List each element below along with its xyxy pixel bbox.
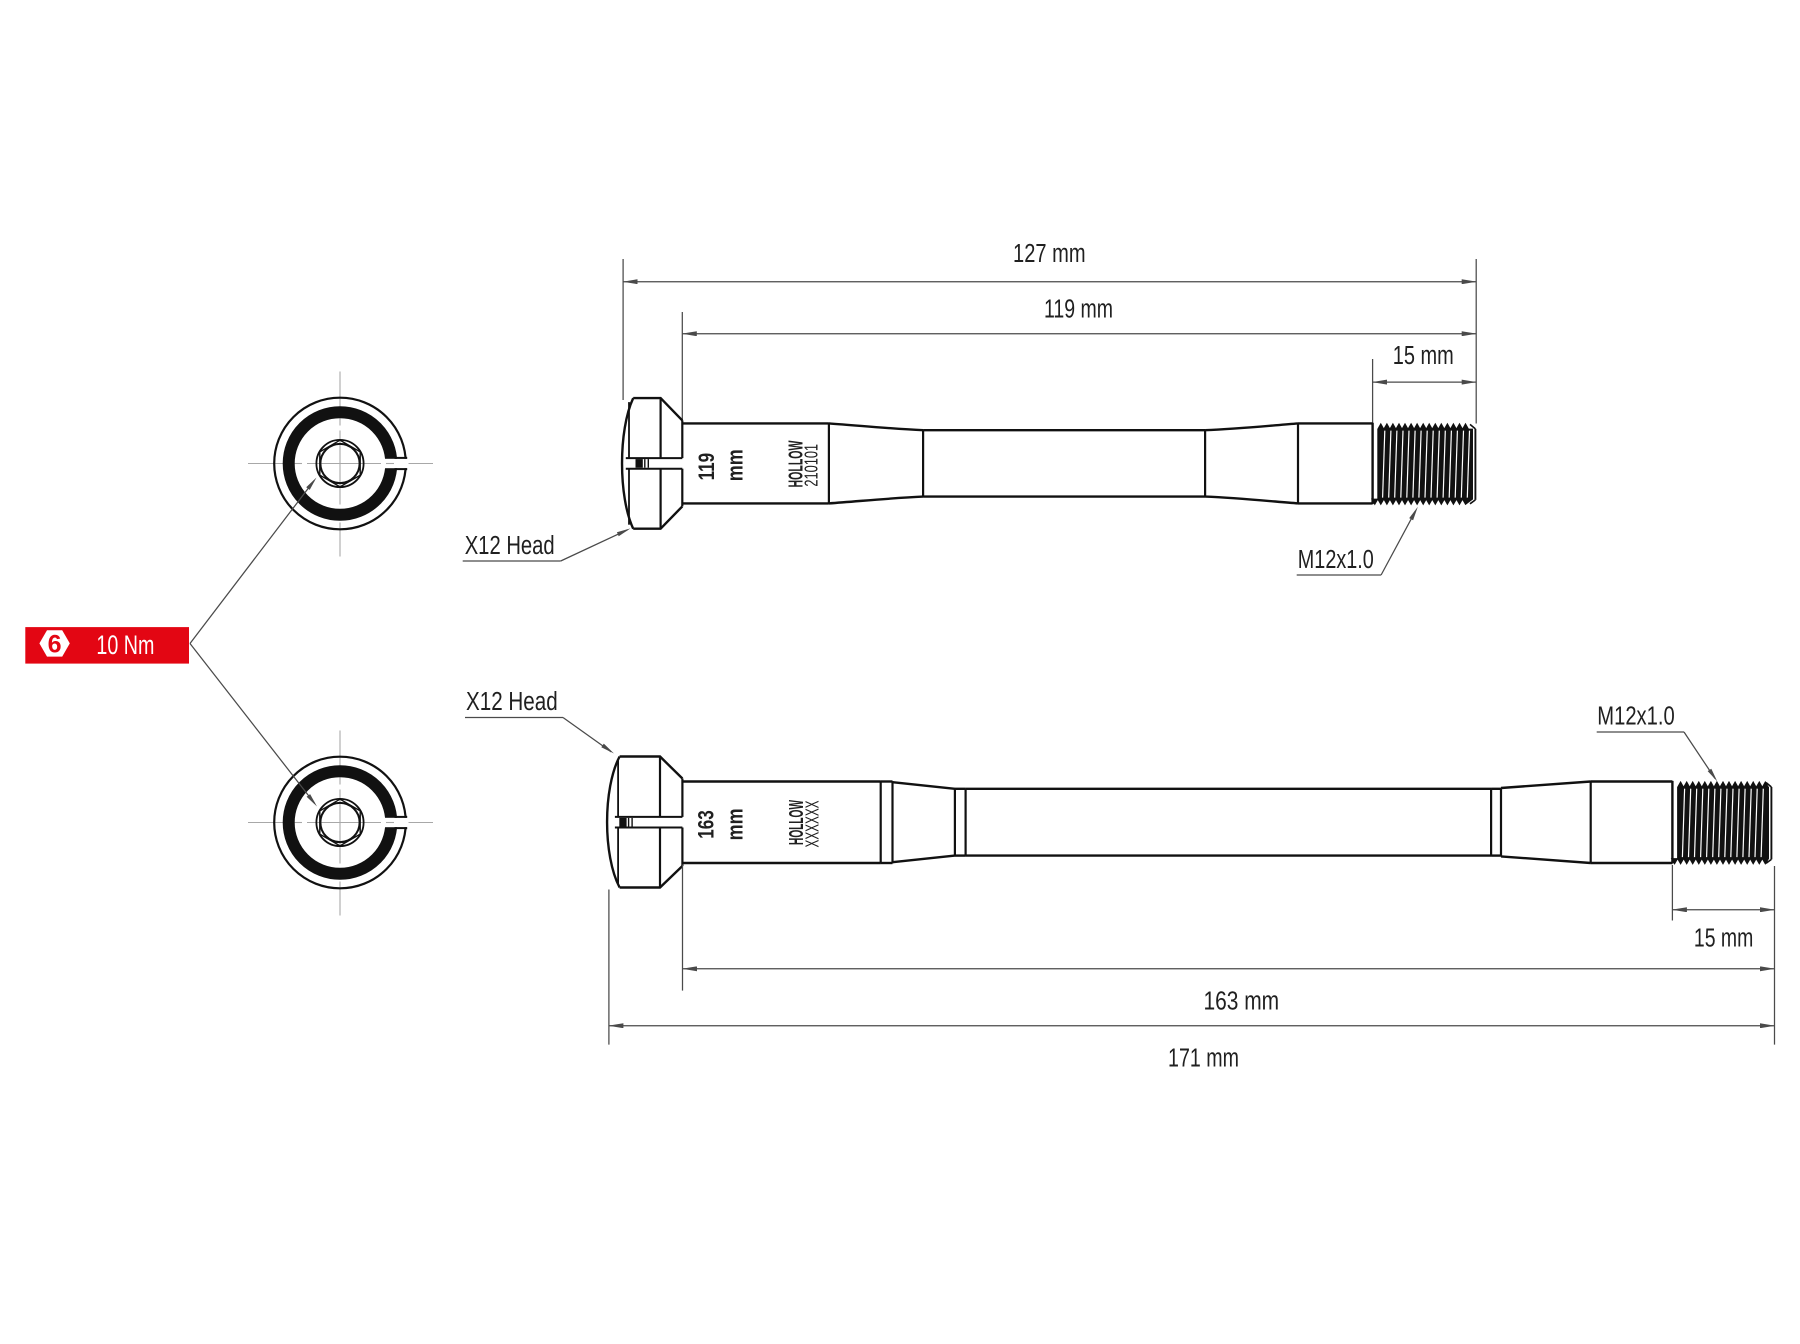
svg-text:X12 Head: X12 Head: [466, 688, 558, 716]
svg-text:10 Nm: 10 Nm: [96, 630, 154, 660]
svg-text:XXXXXX: XXXXXX: [802, 801, 823, 848]
svg-text:163 mm: 163 mm: [1203, 988, 1279, 1016]
svg-text:M12x1.0: M12x1.0: [1597, 703, 1674, 731]
svg-text:X12 Head: X12 Head: [465, 532, 555, 560]
svg-text:15 mm: 15 mm: [1393, 342, 1454, 370]
svg-text:mm: mm: [723, 449, 748, 481]
svg-text:15 mm: 15 mm: [1694, 924, 1753, 952]
svg-text:119: 119: [694, 453, 719, 481]
svg-text:119 mm: 119 mm: [1044, 296, 1113, 324]
svg-text:171 mm: 171 mm: [1168, 1045, 1239, 1073]
svg-text:mm: mm: [723, 808, 748, 840]
svg-text:6: 6: [48, 631, 62, 659]
svg-text:210101: 210101: [801, 444, 822, 487]
svg-text:M12x1.0: M12x1.0: [1298, 546, 1374, 574]
svg-text:163: 163: [694, 810, 719, 839]
svg-text:127 mm: 127 mm: [1013, 240, 1086, 268]
